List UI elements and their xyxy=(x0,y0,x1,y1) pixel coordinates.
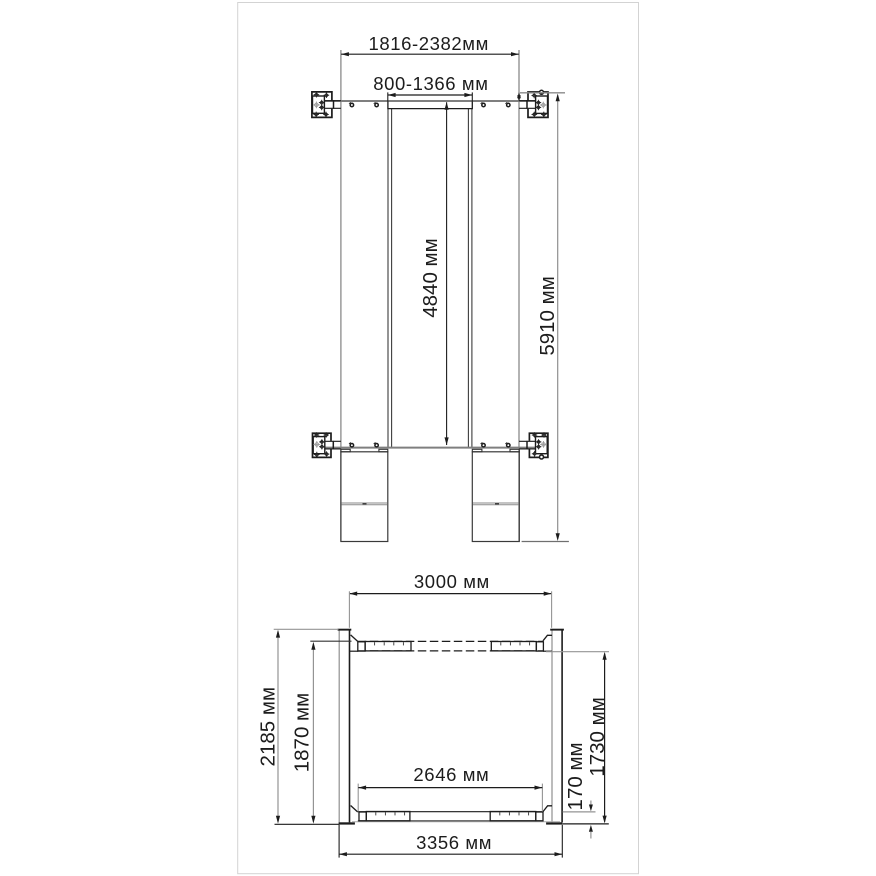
svg-text:1816-2382мм: 1816-2382мм xyxy=(368,33,489,54)
svg-text:3356 мм: 3356 мм xyxy=(416,832,492,853)
svg-text:1730 мм: 1730 мм xyxy=(586,697,609,777)
svg-text:170 мм: 170 мм xyxy=(564,742,587,810)
svg-text:2646 мм: 2646 мм xyxy=(413,764,489,785)
svg-text:1870 мм: 1870 мм xyxy=(290,693,313,773)
svg-text:5910 мм: 5910 мм xyxy=(536,276,559,356)
svg-text:3000 мм: 3000 мм xyxy=(414,571,490,592)
svg-text:800-1366 мм: 800-1366 мм xyxy=(373,73,488,94)
svg-text:4840 мм: 4840 мм xyxy=(419,238,442,318)
svg-text:2185 мм: 2185 мм xyxy=(256,687,279,767)
